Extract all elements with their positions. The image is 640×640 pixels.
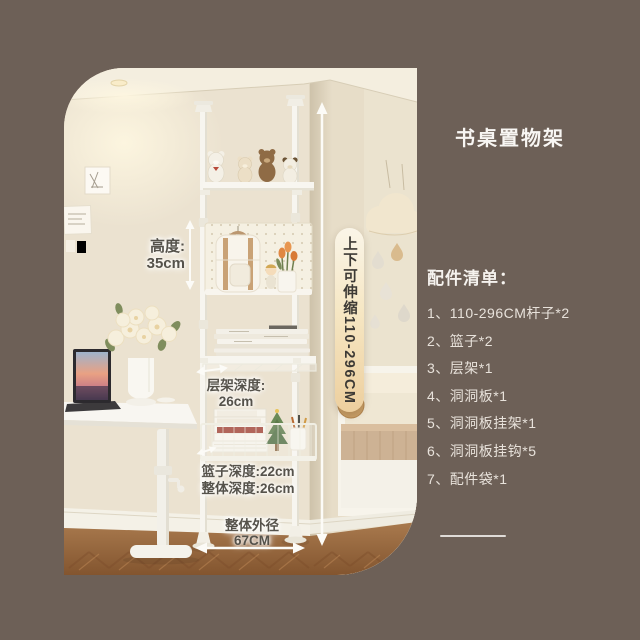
height-label: 高度: <box>133 238 185 255</box>
desk-foot <box>130 545 192 558</box>
shelf-depth-annotation: 层架深度: 26cm <box>201 378 271 410</box>
accessories-header: 配件清单： <box>427 264 517 289</box>
height-value: 35cm <box>133 255 185 272</box>
room-scene <box>64 68 417 575</box>
accessories-list: 1、110-296CM杆子*2 2、篮子*2 3、层架*1 4、洞洞板*1 5、… <box>427 300 570 493</box>
product-title: 书桌置物架 <box>455 122 565 151</box>
extension-range-badge: 上下可伸缩110-296CM <box>335 228 364 412</box>
shelf-depth-label: 层架深度: <box>201 378 271 394</box>
shelf-depth-value: 26cm <box>201 394 271 410</box>
overall-depth-text: 整体深度:26cm <box>198 481 298 498</box>
room-photo: 高度: 35cm 上下可伸缩110-296CM 层架深度: 26cm 篮子深度:… <box>64 68 417 575</box>
ceiling-light <box>111 80 127 86</box>
divider-line <box>440 535 506 537</box>
height-annotation: 高度: 35cm <box>133 238 185 272</box>
backpack <box>216 226 260 292</box>
accessory-item: 4、洞洞板*1 <box>427 383 570 411</box>
outer-width-label: 整体外径 <box>212 518 292 533</box>
storage-basket <box>201 409 316 461</box>
accessory-item: 6、洞洞板挂钩*5 <box>427 438 570 466</box>
basket-depth-text: 篮子深度:22cm <box>198 464 298 481</box>
basket-depth-annotation: 篮子深度:22cm 整体深度:26cm <box>198 464 298 497</box>
outer-width-annotation: 整体外径 67CM <box>212 518 292 548</box>
accessory-item: 3、层架*1 <box>427 355 570 383</box>
product-card: 高度: 35cm 上下可伸缩110-296CM 层架深度: 26cm 篮子深度:… <box>0 0 640 640</box>
accessory-item: 7、配件袋*1 <box>427 466 570 494</box>
accessory-item: 5、洞洞板挂架*1 <box>427 410 570 438</box>
accessory-item: 1、110-296CM杆子*2 <box>427 300 570 328</box>
accessory-item: 2、篮子*2 <box>427 328 570 356</box>
outer-width-value: 67CM <box>212 533 292 548</box>
book-shelf <box>200 326 316 372</box>
